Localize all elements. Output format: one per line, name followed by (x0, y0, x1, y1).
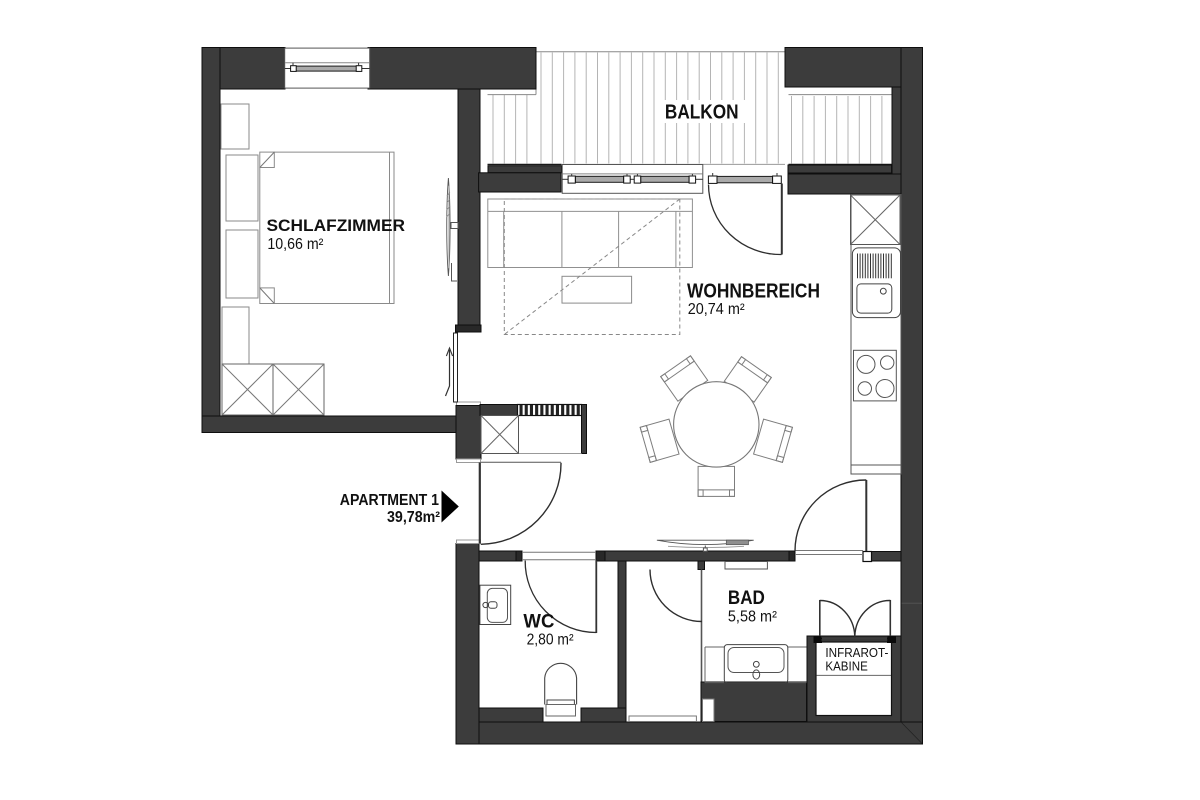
svg-text:WC: WC (523, 611, 554, 633)
svg-text:WOHNBEREICH: WOHNBEREICH (687, 281, 820, 303)
svg-text:BAD: BAD (728, 587, 765, 609)
svg-text:10,66 m²: 10,66 m² (267, 236, 323, 253)
svg-text:20,74 m²: 20,74 m² (688, 301, 745, 318)
svg-text:39,78m²: 39,78m² (387, 509, 440, 526)
svg-text:APARTMENT 1: APARTMENT 1 (340, 492, 440, 509)
svg-text:BALKON: BALKON (665, 102, 739, 124)
svg-text:2,80 m²: 2,80 m² (527, 632, 574, 649)
svg-text:5,58 m²: 5,58 m² (728, 609, 777, 626)
svg-text:KABINE: KABINE (825, 659, 868, 674)
svg-text:SCHLAFZIMMER: SCHLAFZIMMER (267, 217, 406, 235)
